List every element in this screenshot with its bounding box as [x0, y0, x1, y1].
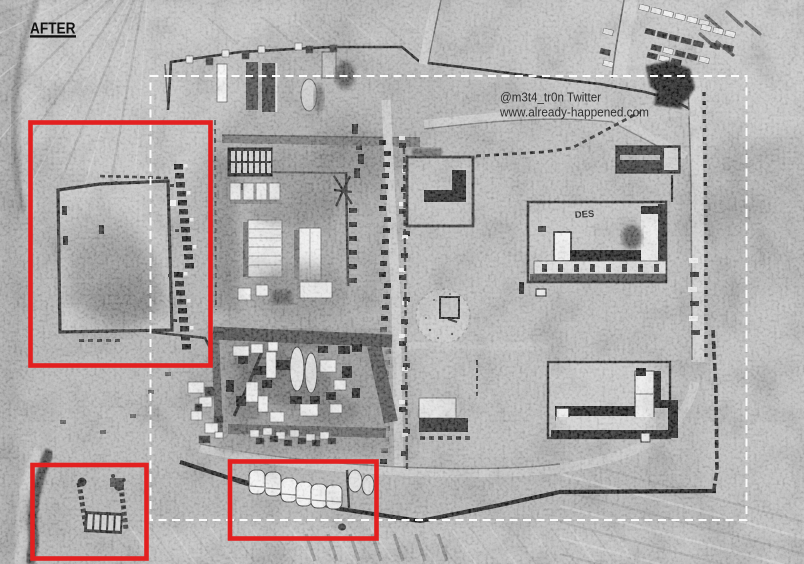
svg-text:www.already-happened.com: www.already-happened.com: [499, 105, 649, 120]
svg-text:@m3t4_tr0n Twitter: @m3t4_tr0n Twitter: [500, 90, 602, 105]
svg-text:AFTER: AFTER: [30, 21, 76, 38]
